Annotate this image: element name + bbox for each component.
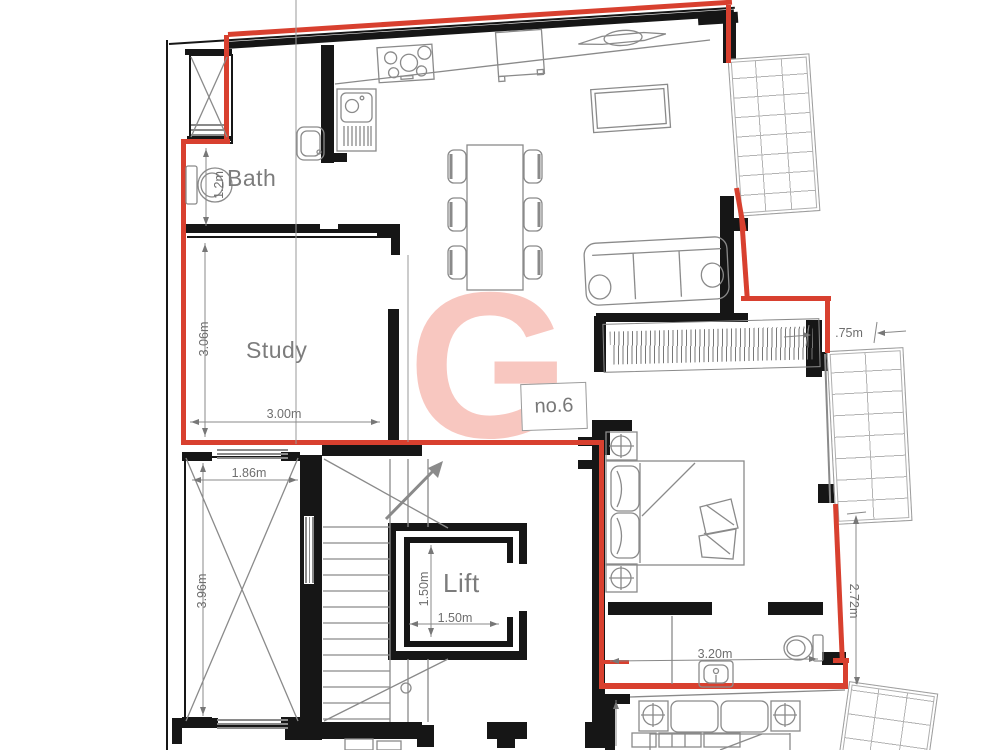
- lift-cab-wall: [507, 617, 513, 647]
- balcony-bottom-right: [838, 681, 939, 750]
- room-label-lift: Lift: [443, 568, 480, 599]
- boundary-red-segment: [726, 5, 731, 63]
- kitchen-sink-icon: [337, 89, 376, 151]
- boundary-red-segment: [603, 660, 629, 664]
- lift-cab-wall: [404, 641, 513, 647]
- room-label-bath: Bath: [227, 165, 276, 192]
- boundary-red-segment: [739, 216, 750, 300]
- dim-balcony-offset: .75m: [819, 326, 879, 340]
- wall-bedroom-bottom: [608, 602, 712, 615]
- room-label-study: Study: [246, 337, 307, 364]
- wall-study-top-thin: [187, 236, 378, 238]
- boundary-red-segment: [181, 139, 230, 144]
- louvre-line: [217, 723, 288, 725]
- coffee-table-icon: [591, 84, 671, 132]
- boundary-red-left: [181, 140, 186, 445]
- louvre-line: [312, 517, 314, 583]
- louvre-line: [217, 453, 288, 455]
- wall-kitchen-divider-foot: [321, 153, 347, 162]
- wall-below: [285, 718, 322, 740]
- wall-bedroom-corner: [610, 420, 632, 431]
- bed-icon: [606, 461, 744, 565]
- wall-stair-bottom: [322, 722, 422, 739]
- louvre-line: [217, 457, 288, 459]
- kitchen-counter: [335, 40, 710, 84]
- dim-bath-toilet: 1.2m: [212, 155, 226, 215]
- wardrobe: [602, 318, 820, 373]
- hand-basin-icon: [297, 127, 324, 160]
- stove-icon: [377, 44, 434, 82]
- wall-stair-bottom: [585, 722, 605, 748]
- wall-living-right: [720, 196, 734, 318]
- door-notch: [320, 224, 338, 229]
- louvre-line: [305, 517, 307, 583]
- unit-number-box: no.6: [520, 382, 588, 431]
- nightstand-icon: [606, 432, 637, 592]
- unit-number-label: no.6: [534, 394, 574, 418]
- wall-study-right: [388, 309, 399, 442]
- sofa-icon: [584, 236, 730, 305]
- floor-plan: G: [0, 0, 1000, 750]
- boundary-red-segment: [741, 296, 831, 301]
- lift-wall: [388, 651, 527, 660]
- lift-cab-wall: [404, 537, 513, 543]
- louvre-line: [191, 129, 228, 131]
- louvre-line: [217, 719, 288, 721]
- dim-lift-width: 1.50m: [425, 611, 485, 625]
- wardrobe-hatch: [610, 326, 814, 364]
- boundary-red-segment: [224, 35, 229, 143]
- boundary-red-segment: [833, 504, 845, 662]
- wall-below: [172, 718, 182, 744]
- louvre-line: [309, 517, 311, 583]
- balcony-top-right: [728, 53, 821, 216]
- louvre-line: [191, 134, 228, 136]
- dim-lift-depth: 1.50m: [417, 559, 431, 619]
- wall-kitchen-divider: [321, 45, 334, 163]
- balcony-right: [826, 347, 912, 525]
- lift-cab-wall: [404, 537, 410, 647]
- dim-bedroom-height: 2.72m: [847, 571, 861, 631]
- shelf-icon: [578, 27, 667, 48]
- fridge-icon: [496, 29, 545, 81]
- door-jamb: [497, 739, 515, 748]
- lift-wall: [519, 611, 527, 660]
- wall-outer-left: [166, 40, 168, 750]
- wall-bath-bottom: [184, 224, 400, 233]
- louvre-line: [217, 727, 288, 729]
- louvre-line: [191, 124, 228, 126]
- shaft-cap: [182, 452, 212, 461]
- dim-study-height: 3.06m: [197, 309, 211, 369]
- lift-wall: [388, 523, 527, 531]
- boundary-red-bottom: [601, 683, 848, 689]
- door-jamb: [417, 725, 434, 747]
- wall-bedroom-bottom: [768, 602, 823, 615]
- toilet-icon: [784, 635, 823, 661]
- watermark-letter: G: [408, 262, 570, 470]
- lift-wall: [519, 523, 527, 564]
- wall-stair-bottom: [487, 722, 527, 739]
- wall-below: [605, 694, 615, 750]
- dim-study-width: 3.00m: [254, 407, 314, 421]
- lift-cab-wall: [507, 537, 513, 563]
- wall-study-corner-v: [391, 229, 400, 255]
- dim-shaft-width: 1.86m: [219, 466, 279, 480]
- louvre-line: [217, 449, 288, 451]
- boundary-red-segment: [599, 444, 604, 689]
- boundary-red-segment: [183, 440, 604, 445]
- lift-wall: [388, 523, 396, 660]
- dim-ensuite-width: 3.20m: [685, 647, 745, 661]
- dim-shaft-height: 3.96m: [195, 561, 209, 621]
